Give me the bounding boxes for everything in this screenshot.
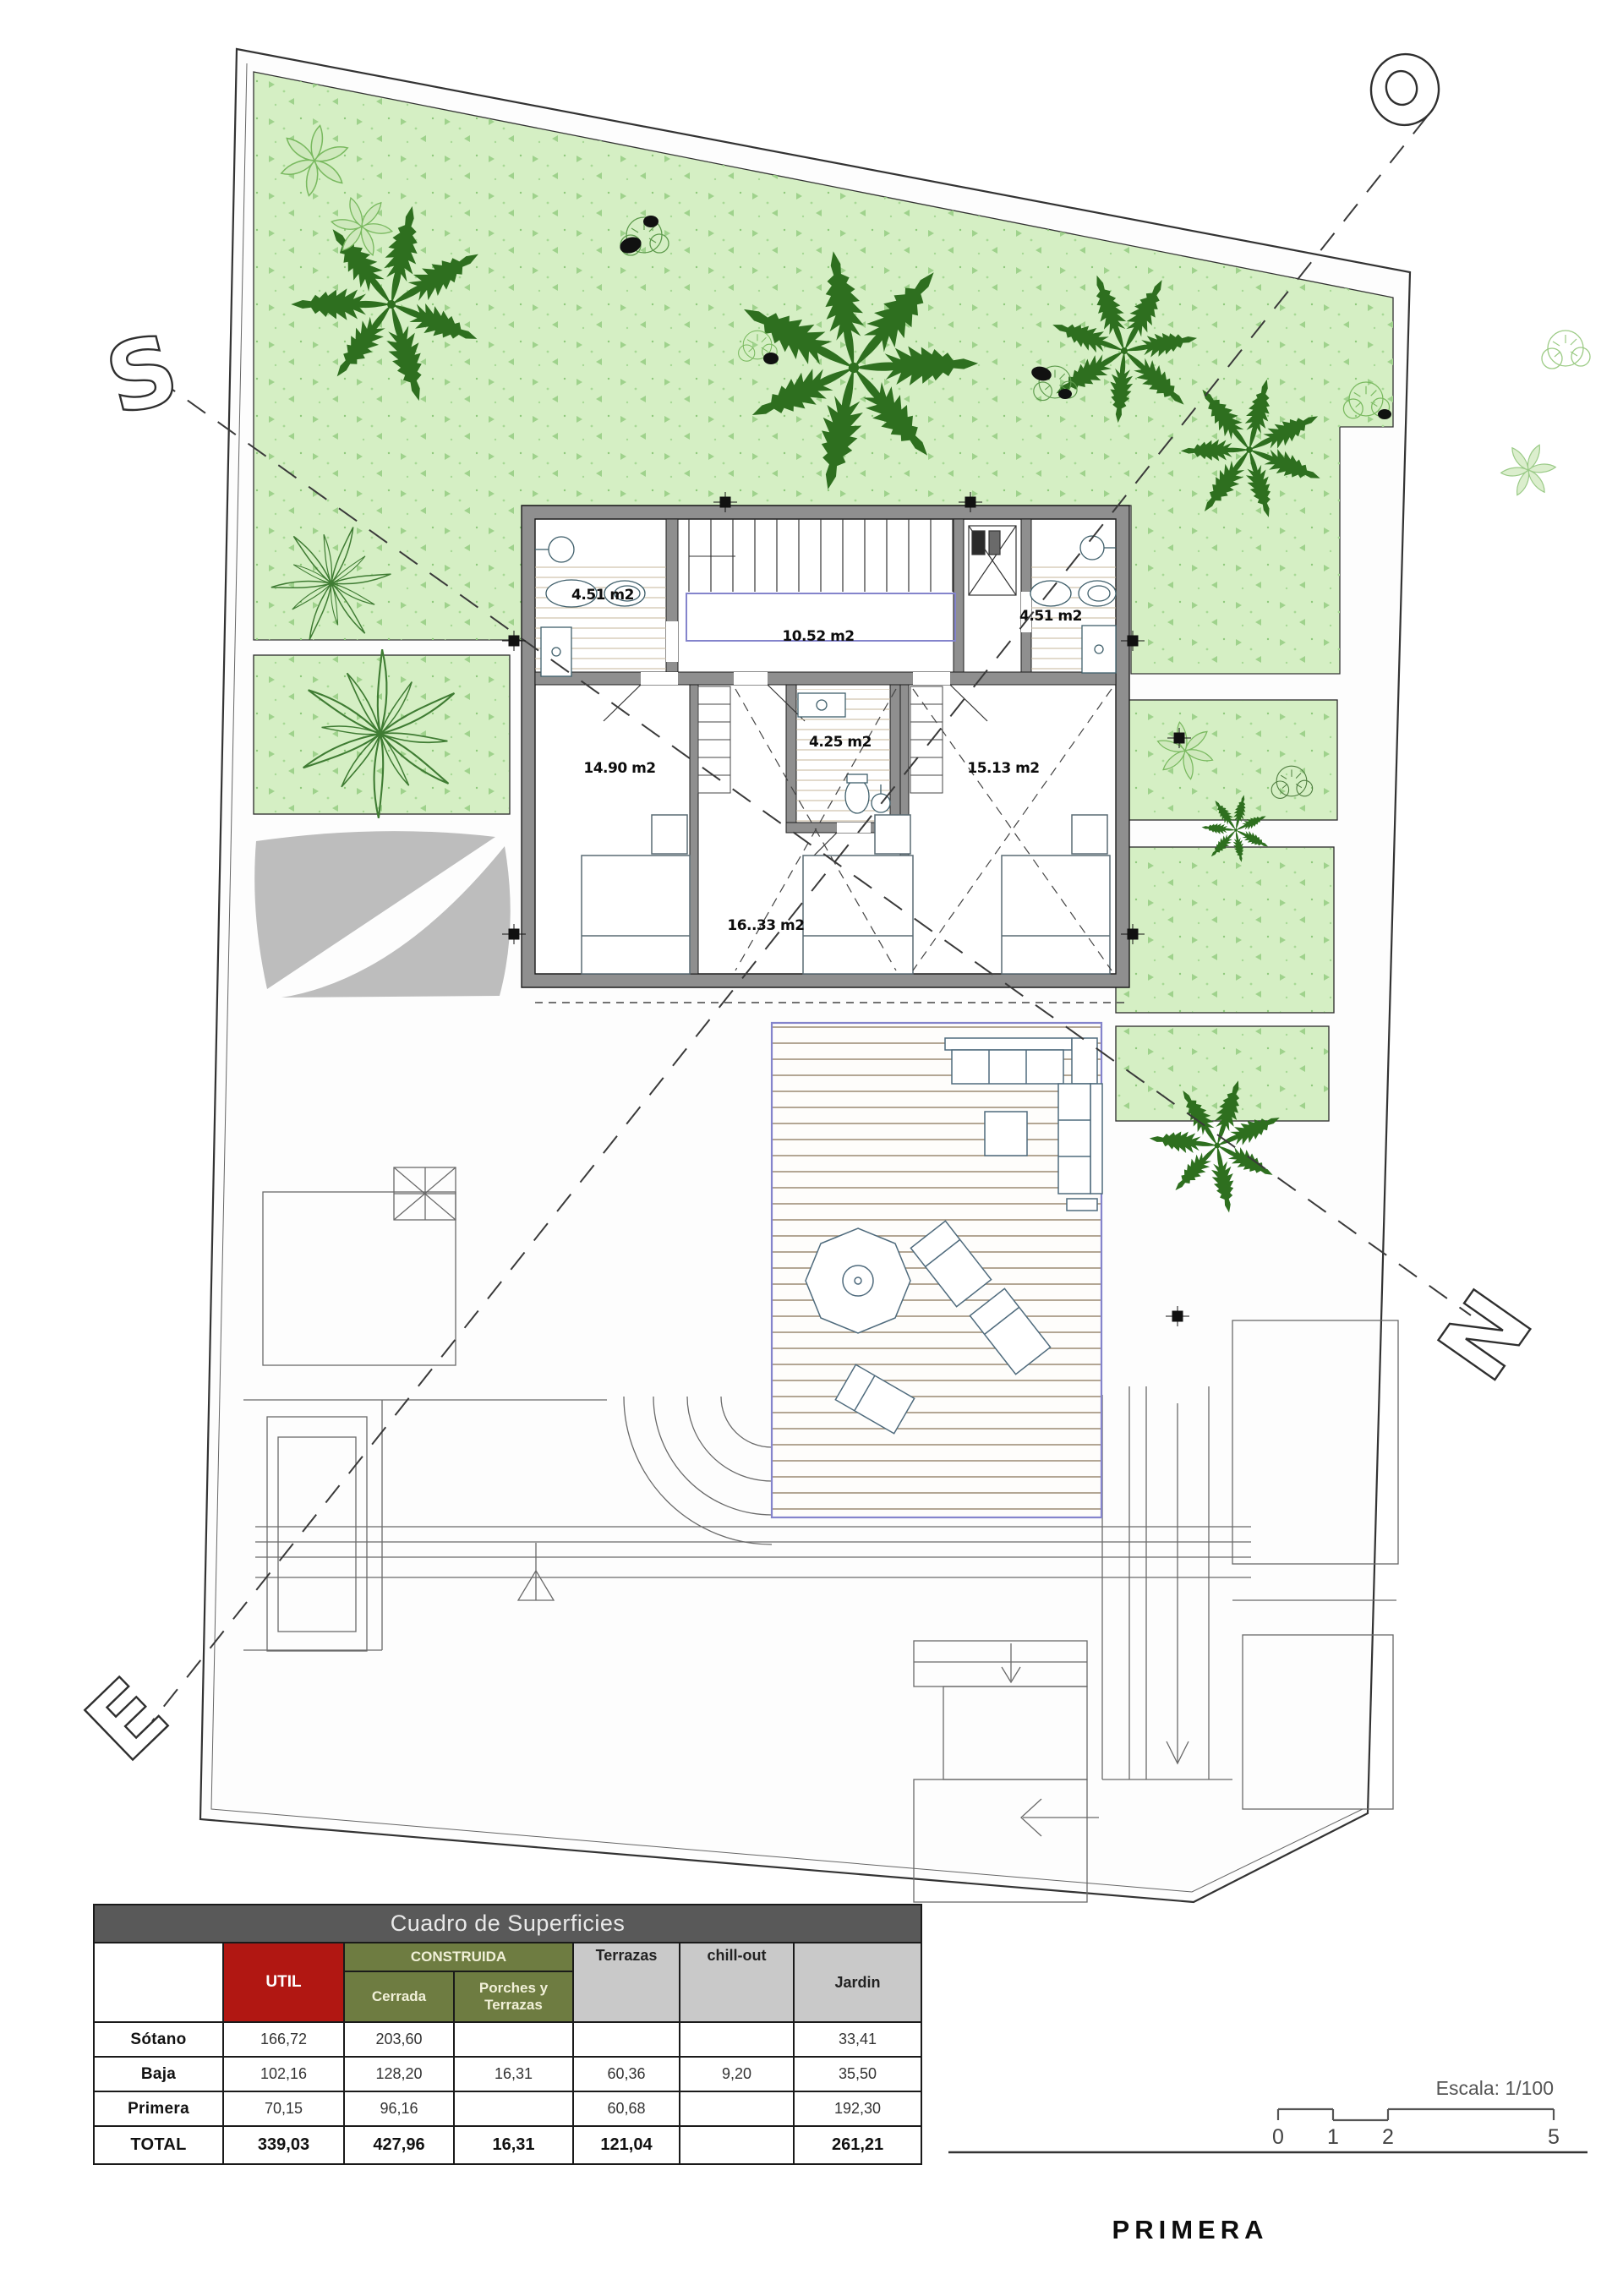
table-row-total: TOTAL 339,03 427,96 16,31 121,04 261,21 <box>94 2126 921 2164</box>
table-row: Primera 70,15 96,16 60,68 192,30 <box>94 2091 921 2126</box>
col-header-jardin: Jardin <box>794 1943 921 2022</box>
cell-cerrada: 203,60 <box>344 2022 454 2057</box>
compass-south: S <box>96 314 189 437</box>
cell-jardin: 35,50 <box>794 2057 921 2091</box>
room-label: 10.52 m2 <box>782 628 854 645</box>
cell-porches <box>454 2091 573 2126</box>
cell-porches: 16,31 <box>454 2057 573 2091</box>
cell-jardin: 33,41 <box>794 2022 921 2057</box>
cell-cerrada: 427,96 <box>344 2126 454 2164</box>
cell-jardin: 261,21 <box>794 2126 921 2164</box>
room-label: 4.51 m2 <box>571 587 634 604</box>
surfaces-table: Cuadro de Superficies UTIL CONSTRUIDA Te… <box>93 1904 922 2165</box>
compass-west <box>1367 50 1444 129</box>
room-label: 14.90 m2 <box>583 760 655 777</box>
col-header-util: UTIL <box>223 1943 344 2022</box>
table-corner-cell <box>94 1943 223 2022</box>
row-label: Primera <box>94 2091 223 2126</box>
table-row: Sótano 166,72 203,60 33,41 <box>94 2022 921 2057</box>
room-label: 15.13 m2 <box>967 760 1039 777</box>
row-label: TOTAL <box>94 2126 223 2164</box>
cell-util: 339,03 <box>223 2126 344 2164</box>
house-first-floor: 4.51 m2 10.52 m2 4.51 m2 14.90 m2 4.25 m… <box>522 506 1129 987</box>
cell-terrazas: 60,68 <box>573 2091 680 2126</box>
coffee-table <box>985 1112 1027 1156</box>
floor-plan-page: 4.51 m2 10.52 m2 4.51 m2 14.90 m2 4.25 m… <box>0 0 1623 2296</box>
compass-east: E <box>66 1659 189 1783</box>
row-label: Baja <box>94 2057 223 2091</box>
col-header-porches: Porches y Terrazas <box>454 1971 573 2022</box>
table-title: Cuadro de Superficies <box>94 1905 921 1943</box>
cell-terrazas: 60,36 <box>573 2057 680 2091</box>
compass-north: N <box>1418 1272 1554 1400</box>
cell-chillout: 9,20 <box>680 2057 794 2091</box>
table-row: Baja 102,16 128,20 16,31 60,36 9,20 35,5… <box>94 2057 921 2091</box>
cell-porches: 16,31 <box>454 2126 573 2164</box>
room-label: 4.51 m2 <box>1019 608 1082 625</box>
cell-jardin: 192,30 <box>794 2091 921 2126</box>
cell-chillout <box>680 2022 794 2057</box>
col-header-cerrada: Cerrada <box>344 1971 454 2022</box>
cell-chillout <box>680 2091 794 2126</box>
row-label: Sótano <box>94 2022 223 2057</box>
cell-util: 102,16 <box>223 2057 344 2091</box>
cell-terrazas <box>573 2022 680 2057</box>
cell-terrazas: 121,04 <box>573 2126 680 2164</box>
scale-tick: 5 <box>1548 2125 1560 2149</box>
scale-label: Escala: 1/100 <box>1436 2077 1554 2099</box>
col-header-terrazas: Terrazas <box>573 1943 680 2022</box>
scale-bar: Escala: 1/100 0 1 2 5 <box>948 2077 1587 2152</box>
scale-tick: 2 <box>1382 2125 1394 2149</box>
room-label: 16..33 m2 <box>727 917 804 934</box>
cell-cerrada: 96,16 <box>344 2091 454 2126</box>
scale-tick: 0 <box>1272 2125 1284 2149</box>
sheet-title: PRIMERA <box>1112 2215 1269 2244</box>
col-header-construida: CONSTRUIDA <box>344 1943 573 1971</box>
col-header-chillout: chill-out <box>680 1943 794 2022</box>
cell-util: 70,15 <box>223 2091 344 2126</box>
room-label: 4.25 m2 <box>809 734 872 751</box>
cell-util: 166,72 <box>223 2022 344 2057</box>
scale-tick: 1 <box>1327 2125 1339 2149</box>
cell-cerrada: 128,20 <box>344 2057 454 2091</box>
cell-chillout <box>680 2126 794 2164</box>
cell-porches <box>454 2022 573 2057</box>
parasol-table <box>806 1228 910 1333</box>
